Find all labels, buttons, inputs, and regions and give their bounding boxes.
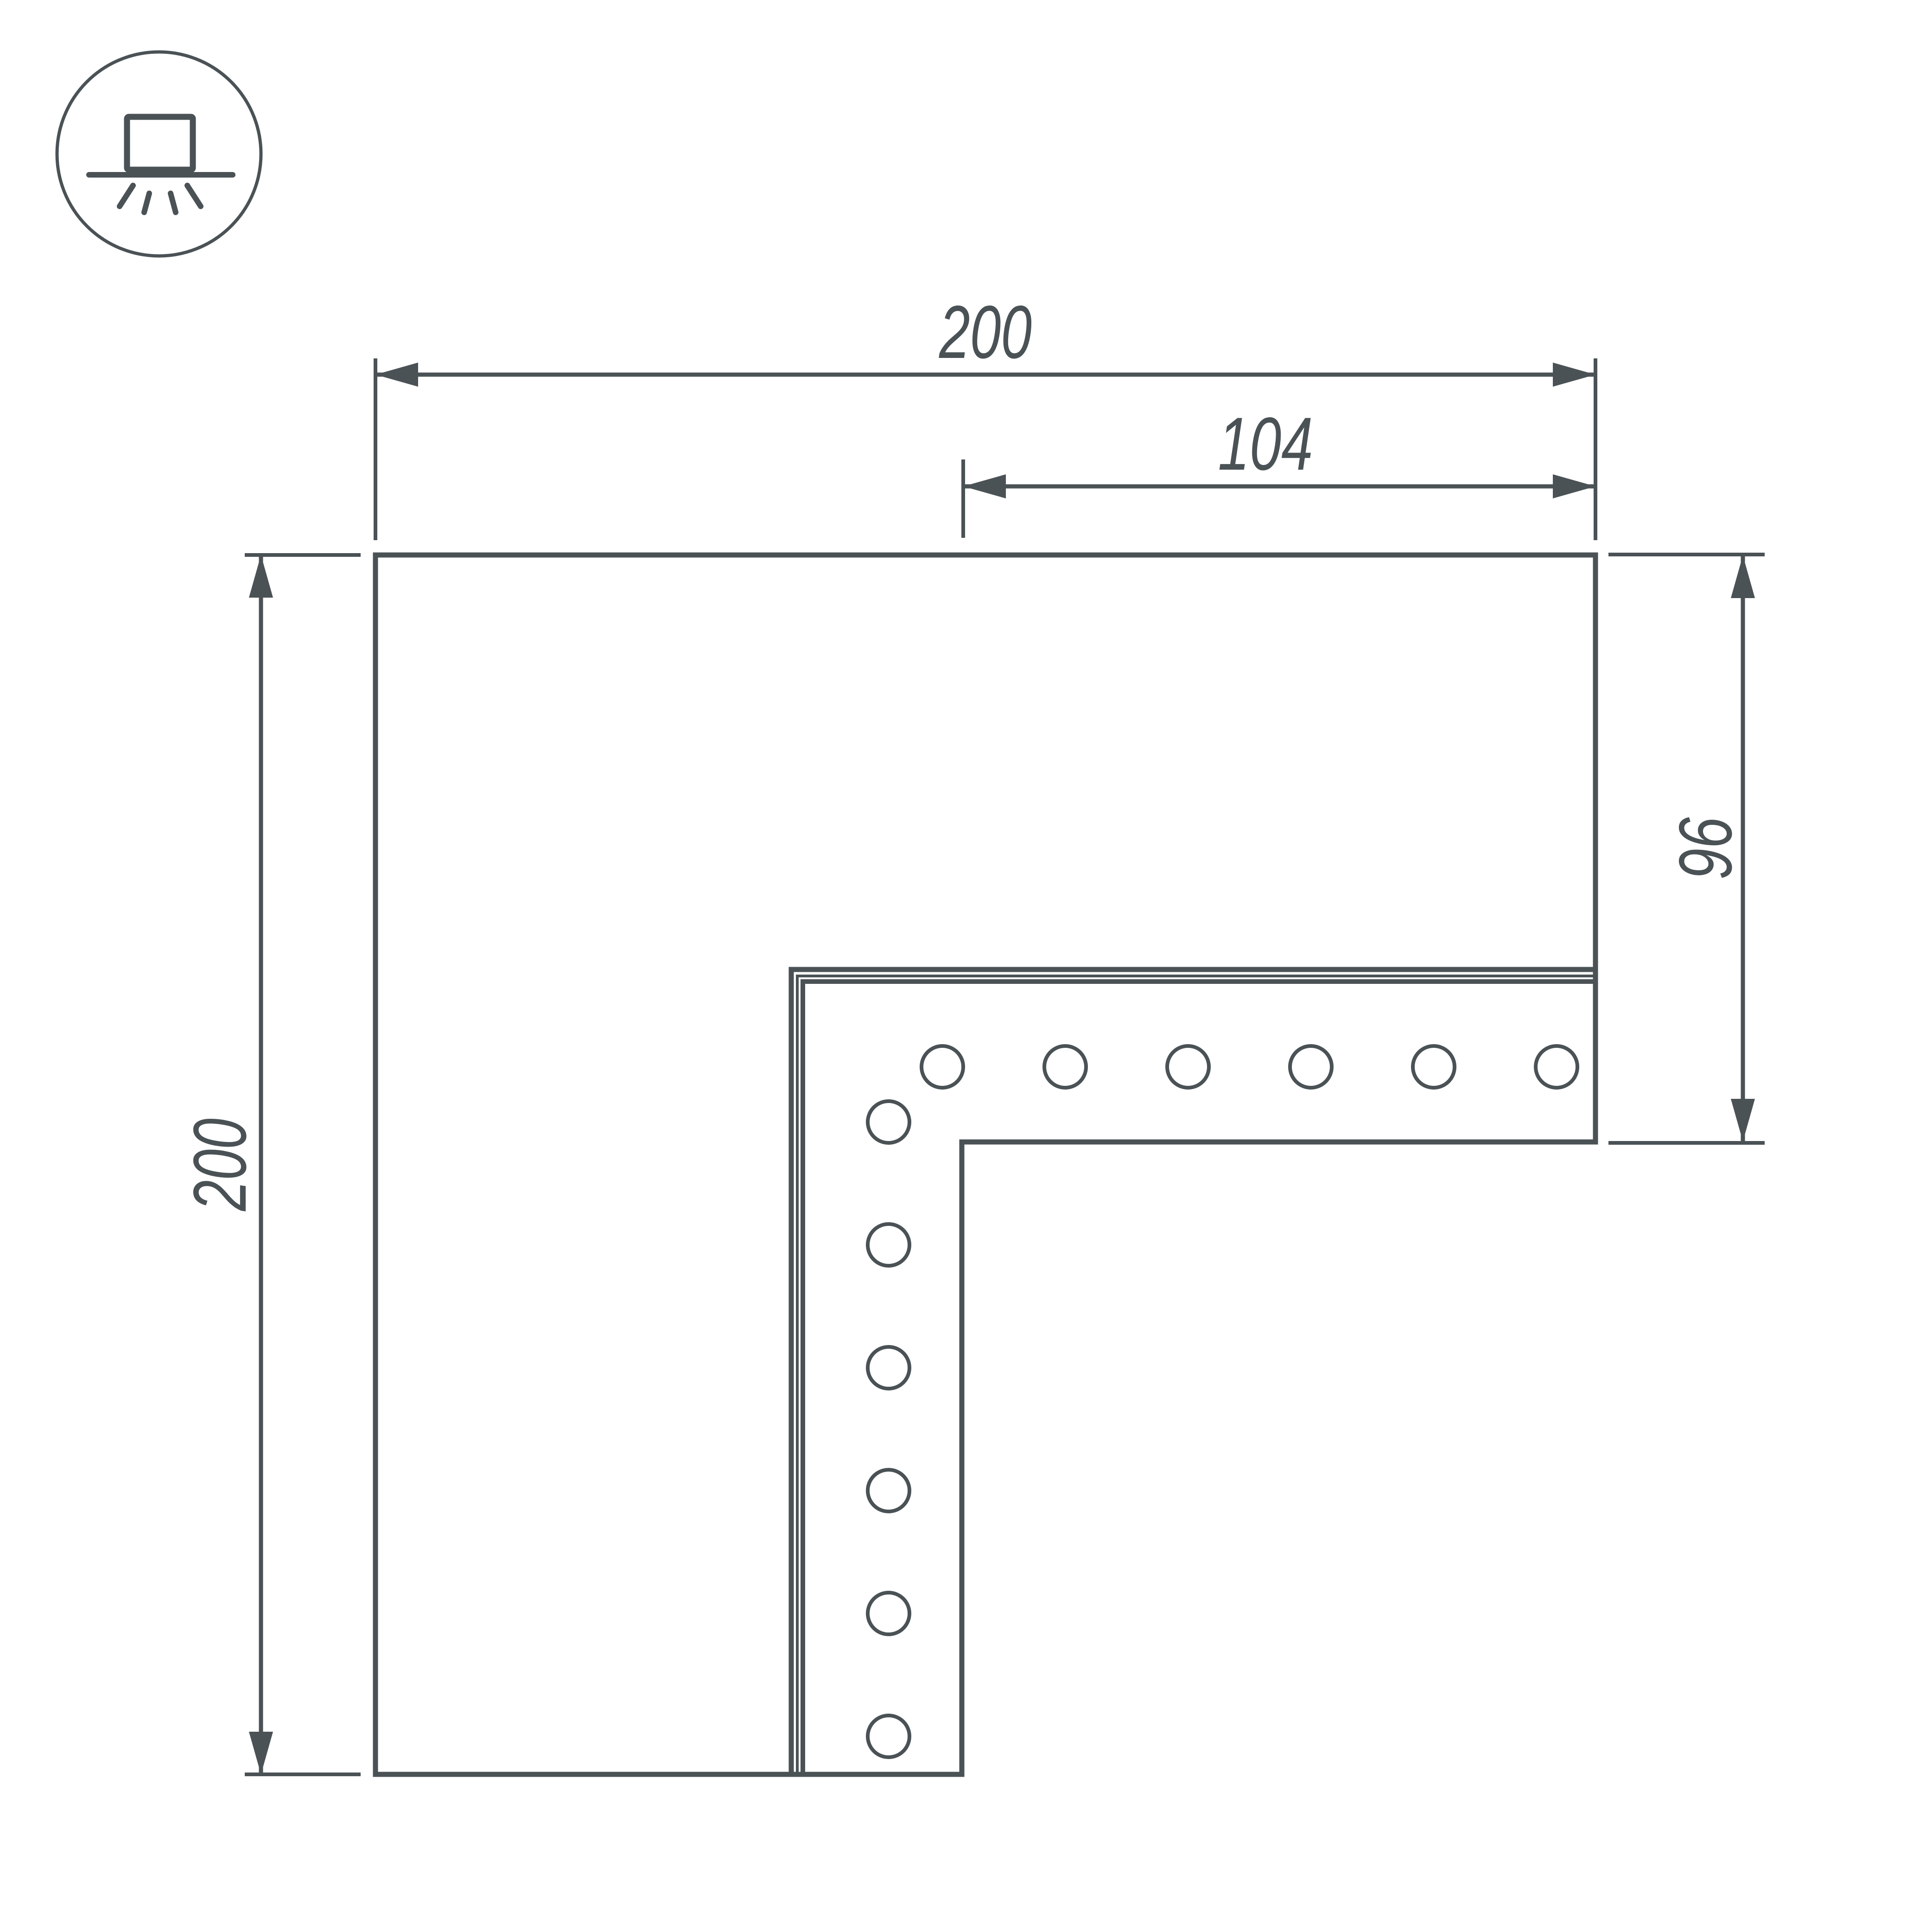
dimension-label-inner-width: 104 <box>1218 402 1313 486</box>
dimension-label-left-height: 200 <box>178 1118 262 1211</box>
dimension-label-right-height: 96 <box>1664 817 1748 880</box>
technical-drawing: 200 104 96 200 <box>0 0 1932 1932</box>
dimension-label-top-width: 200 <box>939 290 1032 374</box>
